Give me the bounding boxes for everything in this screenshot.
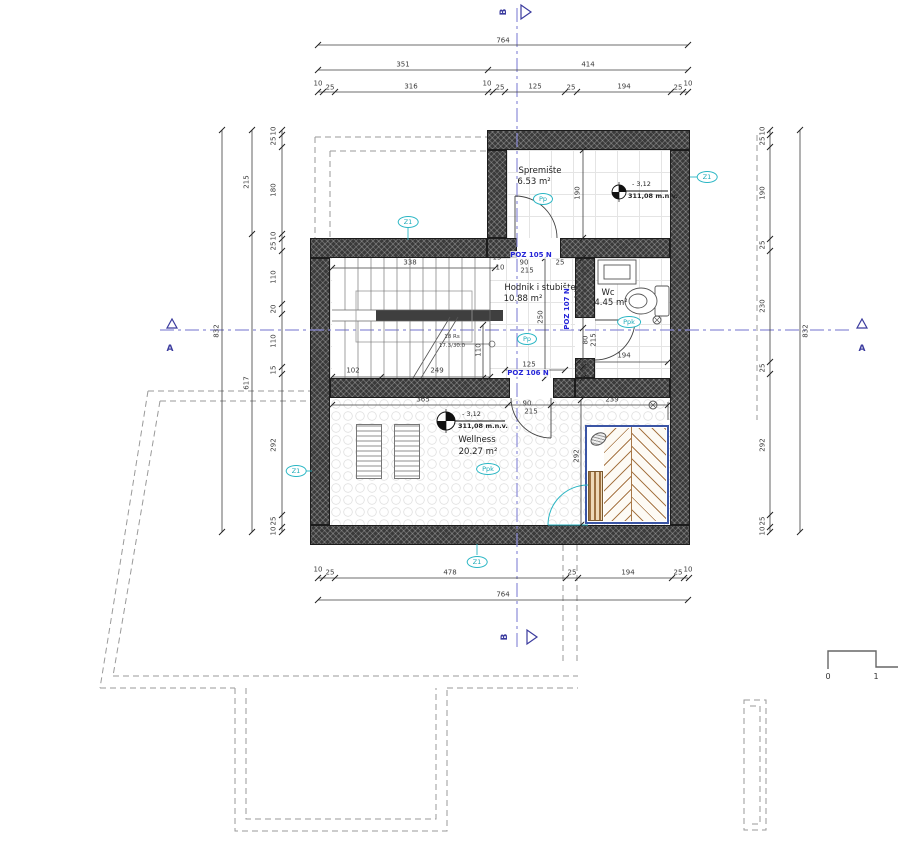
dim-label: 194: [621, 570, 634, 577]
section-marker-icon: [167, 5, 867, 644]
room-area-wc: 4.45 m²: [594, 298, 627, 308]
section-line: [160, 8, 852, 648]
dim-label: 832: [214, 324, 221, 337]
dim-label: 10: [314, 567, 323, 574]
section-letter-a: A: [167, 344, 174, 354]
dim-label: 110: [476, 343, 483, 356]
dim-label: 25: [760, 241, 767, 250]
dim-label: 25: [567, 85, 576, 92]
dim-label: 478: [443, 570, 456, 577]
dim-label: 180: [271, 183, 278, 196]
scale-label: 0: [825, 672, 830, 681]
stairs-linework: [332, 258, 495, 378]
dim-label: 292: [271, 438, 278, 451]
dim-label: 25: [556, 260, 565, 267]
dim-label: 125: [528, 84, 541, 91]
dim-label: 80: [583, 336, 590, 345]
room-area-wellness: 20.27 m²: [459, 447, 498, 457]
scale-label: 1: [873, 672, 878, 681]
dim-label: 10: [760, 527, 767, 536]
dim-label: 10: [271, 527, 278, 536]
poz-label-106: POZ 106 N: [507, 369, 549, 377]
room-name-wellness: Wellness: [458, 435, 495, 445]
dim-label: 338: [403, 260, 416, 267]
dim-label: 194: [617, 84, 630, 91]
dim-label: 292: [574, 449, 581, 462]
dim-label: 351: [396, 62, 409, 69]
dim-label: 90: [523, 401, 532, 408]
dim-label: 25: [760, 517, 767, 526]
section-letter-b: B: [499, 9, 509, 16]
elevation-value: - 3,12: [632, 181, 651, 188]
room-area-spremiste: 6.53 m²: [517, 177, 550, 187]
room-name-wc: Wc: [601, 288, 614, 298]
dim-label: 10: [314, 81, 323, 88]
dim-label: 215: [244, 175, 251, 188]
dim-label: 230: [760, 299, 767, 312]
room-tag-hodnik: Pp: [517, 333, 537, 345]
dim-label: 125: [522, 362, 535, 369]
room-tag-wc: Ppk: [617, 316, 641, 328]
dim-label: 764: [496, 592, 509, 599]
room-tag-wellness: Ppk: [476, 463, 500, 475]
zone-leader: [304, 177, 697, 555]
section-letter-a: A: [859, 344, 866, 354]
poz-label-107: POZ 107 N: [563, 288, 571, 330]
dim-label: 20: [271, 305, 278, 314]
dim-label: 10: [271, 127, 278, 136]
dim-label: 25: [271, 517, 278, 526]
dim-label: 764: [496, 38, 509, 45]
dim-label: 10: [496, 265, 505, 272]
dim-label: 249: [430, 368, 443, 375]
dim-label: 10: [684, 567, 693, 574]
glass-door-swing: [548, 485, 588, 525]
zone-tag: Z1: [467, 556, 488, 568]
dim-label: 25: [760, 137, 767, 146]
dim-label: 365: [416, 397, 429, 404]
dim-label: 194: [617, 353, 630, 360]
dim-label: 15: [493, 255, 502, 262]
dim-label: 414: [581, 62, 594, 69]
dim-label: 25: [326, 570, 335, 577]
dim-label: 110: [271, 334, 278, 347]
elevation-datum: 311,08 m.n.v.: [628, 193, 678, 200]
dim-label: 25: [760, 364, 767, 373]
dim-label: 292: [760, 438, 767, 451]
dim-label: 25: [326, 85, 335, 92]
dim-label: 25: [674, 570, 683, 577]
dim-label: 25: [271, 137, 278, 146]
stairs-note: 18 Rs: [444, 334, 459, 340]
scale-bar: [828, 651, 898, 669]
dim-label: 316: [404, 84, 417, 91]
dim-label: 10: [483, 81, 492, 88]
room-name-spremiste: Spremište: [519, 166, 562, 176]
dim-label: 25: [496, 85, 505, 92]
dim-label: 250: [538, 310, 545, 323]
dim-label: 15: [271, 366, 278, 375]
room-area-hodnik: 10.88 m²: [504, 294, 543, 304]
dim-label: 215: [591, 333, 598, 346]
room-tag-spremiste: Pp: [533, 193, 553, 205]
projection-outline: [100, 135, 766, 831]
section-letter-b: B: [500, 634, 510, 641]
dim-label: 102: [346, 368, 359, 375]
floor-plan-canvas: 764 351 414 10 25 316 10 25 125 25 194 2…: [0, 0, 898, 850]
dim-label: 10: [271, 232, 278, 241]
dim-label: 30: [585, 364, 592, 373]
dim-label: 190: [760, 186, 767, 199]
dim-label: 10: [760, 127, 767, 136]
dim-label: 215: [524, 409, 537, 416]
zone-tag: Z1: [286, 465, 307, 477]
dim-label: 832: [803, 324, 810, 337]
dim-label: 239: [605, 397, 618, 404]
dim-label: 190: [575, 186, 582, 199]
dim-label: 25: [271, 242, 278, 251]
dim-label: 25: [568, 570, 577, 577]
elevation-value: - 3,12: [462, 411, 481, 418]
zone-tag: Z1: [398, 216, 419, 228]
dim-label: 215: [520, 268, 533, 275]
dim-label: 617: [244, 376, 251, 389]
dim-label: 90: [520, 260, 529, 267]
stairs-note: 17.3/30.0: [439, 343, 465, 349]
zone-tag: Z1: [697, 171, 718, 183]
poz-label-105: POZ 105 N: [510, 251, 552, 259]
elevation-datum: 311,08 m.n.v.: [458, 423, 508, 430]
dim-label: 110: [271, 270, 278, 283]
dim-label: 25: [674, 85, 683, 92]
dim-label: 10: [684, 81, 693, 88]
